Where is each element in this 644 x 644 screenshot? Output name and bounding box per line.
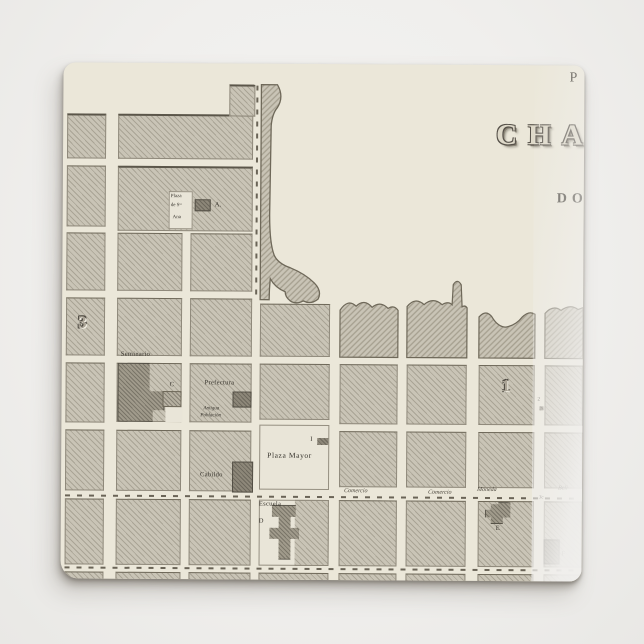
wavy-block-h bbox=[545, 307, 583, 359]
building-f-footprint bbox=[544, 539, 560, 564]
antigua-label-line1: Antigua bbox=[203, 406, 219, 412]
seminario-label: Seminario bbox=[121, 351, 150, 358]
map-title-fragment-top: P bbox=[569, 71, 577, 87]
cabildo-building bbox=[232, 461, 253, 492]
mark-3c-label: 3c bbox=[539, 495, 544, 501]
district-number-3: 3 bbox=[78, 314, 87, 333]
plaza-sta-ana-label-line3: Ana bbox=[173, 215, 181, 221]
street-comercio-1: Comercio bbox=[344, 488, 368, 495]
small-marker-2 bbox=[539, 406, 543, 410]
product-photo: { "tile": { "title": { "fragment_top": "… bbox=[0, 0, 644, 644]
cabildo-label: Cabildo bbox=[200, 471, 223, 478]
street-comercio-2: Comercio bbox=[428, 490, 452, 497]
map-title-main: CHA bbox=[496, 119, 585, 153]
building-a-footprint bbox=[195, 199, 211, 211]
wavy-block-e bbox=[340, 302, 398, 357]
wavy-block-g bbox=[479, 313, 535, 359]
building-e-label: E bbox=[496, 525, 500, 532]
built-edge-strip bbox=[260, 85, 321, 303]
plaza-mayor-label: Plaza Mayor bbox=[267, 452, 312, 461]
plaza-marker-i-label: I bbox=[310, 436, 313, 443]
street-beli: Beli bbox=[558, 485, 568, 492]
antigua-label-line2: Población bbox=[200, 413, 221, 419]
wavy-block-f bbox=[407, 281, 467, 358]
escuela-block-hatched-part bbox=[295, 500, 329, 566]
building-a-label: A. bbox=[215, 201, 222, 208]
annex-c-building bbox=[162, 391, 181, 407]
map-title-sub: DO bbox=[557, 191, 585, 207]
street-moneda: Moneda bbox=[477, 487, 497, 494]
building-d-label: D bbox=[259, 518, 264, 525]
escuela-label: Escuela bbox=[259, 501, 281, 508]
magnet-tile: P CHA DO Plaza de Sᵗᵃ Ana A. 3 Seminario… bbox=[60, 62, 584, 581]
prefectura-label: Prefectura bbox=[205, 379, 235, 386]
mark-2-label: 2 bbox=[538, 397, 541, 403]
seminario-courtyard bbox=[165, 407, 182, 422]
district-number-1: 1 bbox=[502, 377, 511, 396]
building-f-label: F bbox=[562, 550, 566, 557]
antique-map: P CHA DO Plaza de Sᵗᵃ Ana A. 3 Seminario… bbox=[60, 62, 584, 581]
prefectura-building bbox=[232, 391, 251, 407]
annex-c-label: C bbox=[170, 381, 175, 388]
plaza-sta-ana-label-line1: Plaza bbox=[171, 194, 182, 200]
plaza-corner-marker bbox=[317, 438, 328, 445]
plaza-sta-ana-label-line2: de Sᵗᵃ bbox=[171, 203, 182, 209]
